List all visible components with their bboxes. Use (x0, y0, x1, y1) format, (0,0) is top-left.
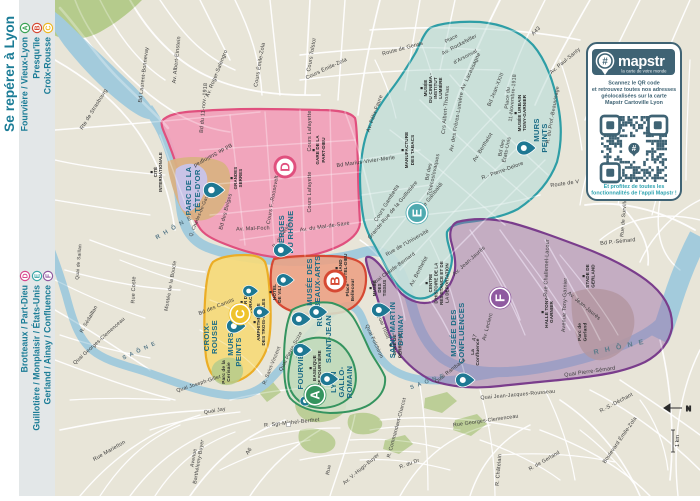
svg-text:Bellecour: Bellecour (350, 279, 356, 302)
svg-text:PART-DIEU: PART-DIEU (321, 137, 326, 163)
svg-text:TONY-GARNIER: TONY-GARNIER (522, 94, 527, 131)
svg-text:SERRES: SERRES (238, 169, 243, 188)
svg-text:ROMAIN: ROMAIN (345, 366, 354, 399)
svg-text:A: A (308, 390, 323, 400)
svg-text:D'HISTOIRE DE LA: D'HISTOIRE DE LA (434, 262, 439, 304)
svg-text:Cours Lafayette: Cours Lafayette (307, 171, 313, 212)
svg-text:GARNIER: GARNIER (549, 300, 554, 322)
svg-text:BEAUX-ARTS: BEAUX-ARTS (313, 256, 322, 309)
svg-text:géolocalisées sur la carte: géolocalisées sur la carte (601, 94, 667, 100)
svg-text:GERLAND: GERLAND (591, 264, 596, 288)
svg-text:A: A (23, 25, 30, 30)
svg-text:TISSUS: TISSUS (382, 280, 387, 296)
svg-text:#: # (602, 57, 608, 68)
svg-text:Scannez le QR code: Scannez le QR code (608, 81, 660, 87)
svg-text:RÉSISTANCE ET DE: RÉSISTANCE ET DE (439, 261, 444, 305)
svg-text:INTERNATIONALE: INTERNATIONALE (158, 152, 163, 192)
svg-text:Mapstr Cartoville Lyon: Mapstr Cartoville Lyon (605, 100, 663, 106)
svg-text:PARC DE LA: PARC DE LA (184, 166, 193, 215)
svg-text:ROUSSE: ROUSSE (210, 320, 219, 354)
svg-text:STADE DE: STADE DE (585, 264, 590, 288)
svg-text:Croix-Rousse: Croix-Rousse (42, 37, 52, 94)
svg-text:C: C (46, 25, 53, 30)
svg-text:la carte de votre monde: la carte de votre monde (621, 69, 667, 74)
svg-text:C: C (233, 309, 248, 319)
svg-text:Cerisaie: Cerisaie (226, 362, 232, 382)
svg-text:Gerland: Gerland (583, 323, 589, 342)
svg-text:B: B (328, 276, 343, 285)
svg-text:1 km: 1 km (675, 435, 681, 447)
svg-text:D'AINAY: D'AINAY (396, 314, 405, 346)
svg-text:et retrouvez toutes nos adress: et retrouvez toutes nos adresses (592, 87, 676, 93)
svg-text:fonctionnalités de l'appli Map: fonctionnalités de l'appli Mapstr ! (591, 191, 677, 197)
svg-text:PEINTS: PEINTS (540, 123, 549, 152)
svg-text:E: E (35, 273, 42, 278)
svg-text:DES TABACS: DES TABACS (410, 135, 415, 166)
svg-text:DES TROIS-GAULES: DES TROIS-GAULES (261, 298, 266, 345)
svg-text:DU CINÉMA -: DU CINÉMA - (426, 73, 433, 103)
svg-text:#: # (632, 144, 637, 153)
svg-text:Se repérer à Lyon: Se repérer à Lyon (2, 16, 17, 132)
svg-text:E: E (410, 208, 425, 217)
svg-text:mapstr: mapstr (618, 54, 665, 70)
svg-text:Av. Mal-Foch: Av. Mal-Foch (236, 225, 270, 232)
svg-text:SAINT-JEAN: SAINT-JEAN (324, 315, 333, 363)
svg-text:Guillotière / Monplaisir / Éta: Guillotière / Monplaisir / États-Unis (31, 285, 41, 431)
svg-text:Presqu'île: Presqu'île (31, 37, 41, 79)
svg-text:LUMIÈRE: LUMIÈRE (436, 77, 443, 98)
svg-text:Gerland / Ainay / Confluence: Gerland / Ainay / Confluence (42, 285, 52, 405)
svg-text:N: N (686, 406, 691, 413)
svg-text:Fourvière / Vieux-Lyon: Fourvière / Vieux-Lyon (19, 37, 29, 131)
svg-text:CENTRE: CENTRE (428, 274, 433, 293)
svg-text:TÊTE-D'OR: TÊTE-D'OR (193, 169, 202, 213)
svg-text:F: F (46, 273, 53, 278)
svg-text:B: B (35, 25, 42, 30)
svg-text:CONFLUENCES: CONFLUENCES (457, 302, 466, 363)
svg-text:D: D (278, 162, 293, 171)
svg-text:Et profitez de toutes les: Et profitez de toutes les (604, 184, 665, 190)
svg-text:Parc de: Parc de (577, 323, 583, 341)
svg-text:D: D (23, 273, 30, 278)
svg-text:MANUFACTURE: MANUFACTURE (404, 132, 409, 169)
svg-text:Confluence: Confluence (475, 338, 481, 365)
svg-text:Rue Coste: Rue Coste (131, 276, 138, 303)
svg-text:Brotteaux / Part-Dieu: Brotteaux / Part-Dieu (19, 285, 29, 373)
svg-text:GARE DE LA: GARE DE LA (315, 135, 320, 165)
svg-text:Cours Lafayette: Cours Lafayette (307, 110, 313, 151)
svg-text:PEINTS: PEINTS (234, 337, 243, 366)
svg-text:LA DÉPORTATION: LA DÉPORTATION (445, 263, 450, 303)
svg-text:F: F (493, 294, 508, 302)
